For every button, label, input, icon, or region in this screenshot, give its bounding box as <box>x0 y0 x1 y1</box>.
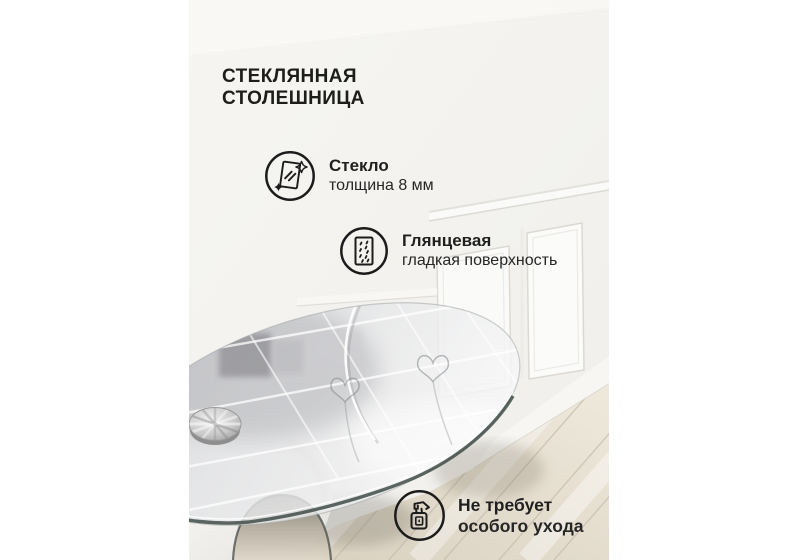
feature-subtitle: гладкая поверхность <box>402 251 557 271</box>
chrome-swivel-plate <box>189 407 241 445</box>
feature-title: Стекло <box>329 156 434 176</box>
product-card: СТЕКЛЯННАЯ СТОЛЕШНИЦА Стекло толщина 8 м… <box>0 0 800 560</box>
spray-bottle-icon <box>393 489 446 542</box>
product-title-line2: СТОЛЕШНИЦА <box>222 88 365 110</box>
feature-glass: Стекло толщина 8 мм <box>264 150 434 202</box>
glass-pane-sparkle-icon <box>264 150 316 202</box>
feature-care: Не требует особого ухода <box>393 489 584 542</box>
feature-subtitle: толщина 8 мм <box>329 176 434 196</box>
product-title: СТЕКЛЯННАЯ СТОЛЕШНИЦА <box>222 66 365 110</box>
feature-title: Глянцевая <box>402 231 557 251</box>
feature-title: Не требует <box>458 495 584 516</box>
feature-glossy: Глянцевая гладкая поверхность <box>339 226 557 276</box>
glossy-surface-icon <box>339 226 389 276</box>
feature-subtitle: особого ухода <box>458 516 584 537</box>
product-title-line1: СТЕКЛЯННАЯ <box>222 66 365 88</box>
